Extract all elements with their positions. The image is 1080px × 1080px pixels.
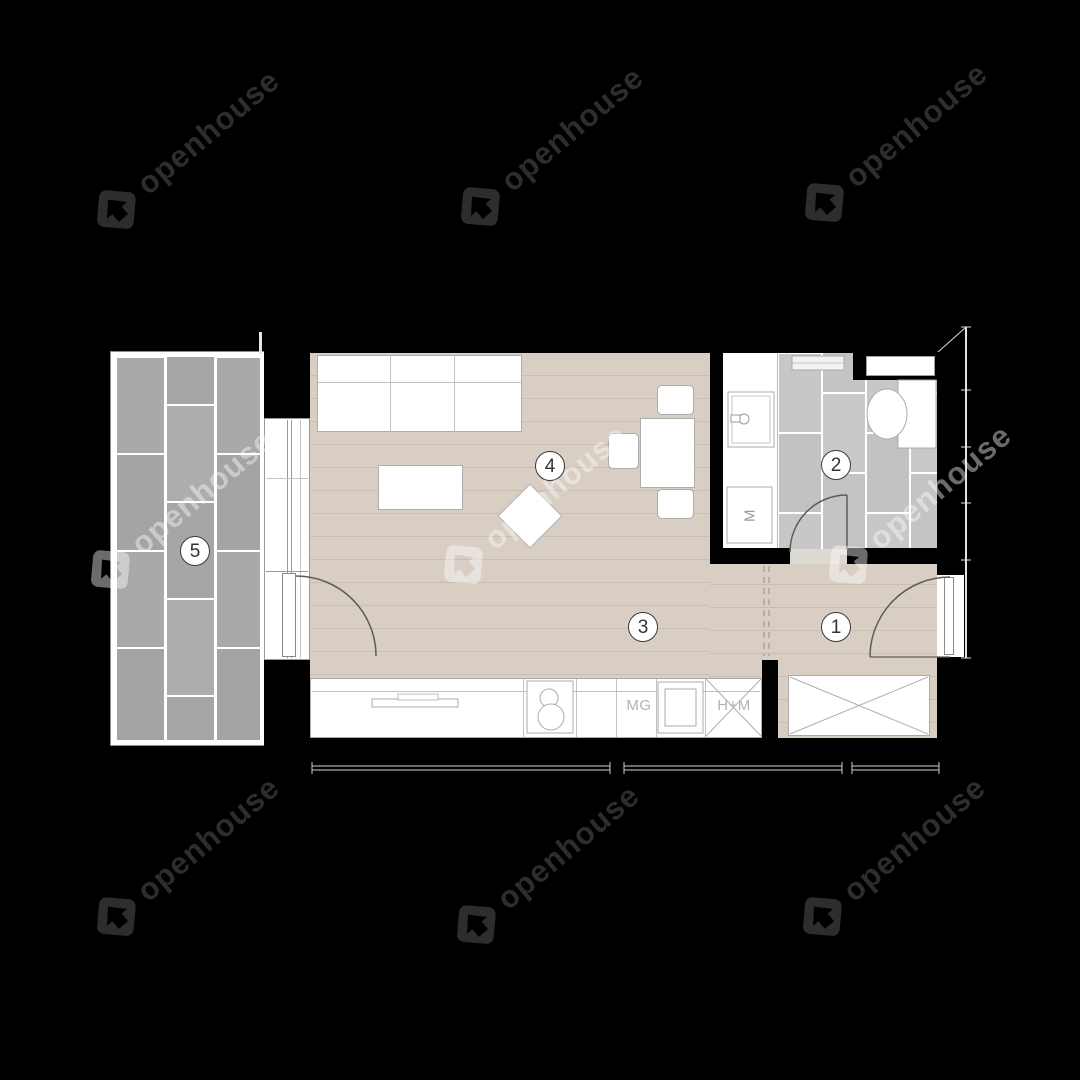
watermark-text: openhouse: [828, 760, 1000, 918]
fridge-freezer-label: H+M: [710, 697, 758, 714]
watermark-text: openhouse: [486, 50, 658, 208]
room-number-bathroom: 2: [821, 450, 851, 480]
dining-chair-left: [608, 433, 639, 469]
watermark: openhouse: [79, 53, 295, 248]
watermark: openhouse: [443, 50, 659, 245]
openhouse-logo-icon: [791, 169, 859, 237]
balcony-glazing-joint-2: [266, 571, 308, 572]
balcony-glazing-joint-1: [266, 478, 308, 479]
dining-chair-top: [657, 385, 694, 415]
washing-machine-label: M: [742, 506, 759, 526]
watermark: openhouse: [439, 768, 655, 963]
watermark: openhouse: [785, 760, 1001, 955]
watermark-text: openhouse: [830, 46, 1002, 204]
kitchen-counter: [310, 678, 762, 738]
openhouse-logo-icon: [447, 173, 515, 241]
balcony-door-leaf: [282, 573, 296, 657]
wall-left-bottom: [264, 660, 310, 762]
room-number-entry: 1: [821, 612, 851, 642]
wall-top: [264, 325, 938, 353]
wall-right-upper: [937, 325, 964, 575]
entrance-door-leaf: [944, 577, 954, 655]
floorplan-canvas: MG H+M M 1 2 3 4 5 openhouse openhouse o…: [0, 0, 1080, 1080]
wall-bottom: [264, 738, 964, 762]
wall-stub-kitchen-wardrobe: [762, 660, 778, 738]
wall-left-top: [264, 325, 310, 420]
kitchen-divider-2: [576, 679, 577, 737]
kitchen-counter-edge: [312, 691, 760, 692]
bathroom-threshold: [790, 548, 847, 564]
wall-junction-mark: [259, 332, 262, 354]
entry-wardrobe: [788, 675, 930, 736]
bottom-dimension-lines: [312, 762, 939, 774]
kitchen-divider-5: [705, 679, 706, 737]
room-number-living: 4: [535, 451, 565, 481]
wall-bathroom-bottom-right: [847, 548, 937, 564]
openhouse-logo-icon: [83, 883, 151, 951]
openhouse-logo-icon: [789, 883, 857, 951]
dishwasher-label: MG: [622, 697, 656, 714]
watermark-text: openhouse: [122, 760, 294, 918]
shaft-niche: [866, 356, 935, 376]
kitchen-divider-4: [656, 679, 657, 737]
kitchen-divider-3: [616, 679, 617, 737]
wall-bathroom-left: [710, 353, 723, 564]
wall-bathroom-bottom-left: [713, 548, 790, 564]
dining-table: [640, 418, 695, 488]
watermark: openhouse: [79, 760, 295, 955]
room-number-hall: 3: [628, 612, 658, 642]
openhouse-logo-icon: [83, 176, 151, 244]
sofa: [317, 355, 522, 432]
watermark: openhouse: [787, 46, 1003, 241]
bathroom-tiles: [778, 353, 937, 549]
balcony-glazing-line-3: [300, 420, 301, 658]
watermark-text: openhouse: [122, 53, 294, 211]
watermark-text: openhouse: [482, 768, 654, 926]
openhouse-logo-icon: [443, 891, 511, 959]
room-number-terrace: 5: [180, 536, 210, 566]
coffee-table: [378, 465, 463, 510]
kitchen-divider-1: [523, 679, 524, 737]
dining-chair-bottom: [657, 489, 694, 519]
